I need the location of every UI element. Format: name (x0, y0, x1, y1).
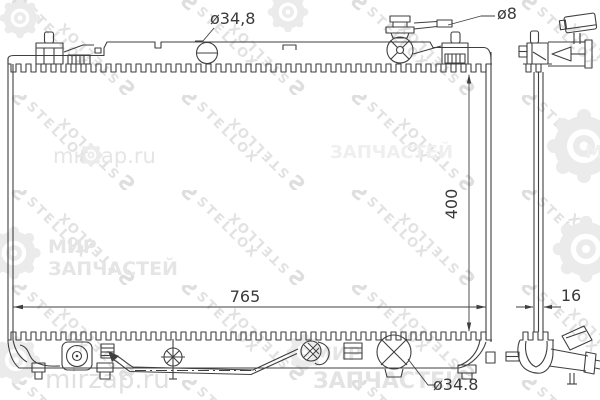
world-watermark-left: МИР (48, 236, 97, 258)
parts-watermark-left: ЗАПЧАСТЕЙ (48, 257, 178, 280)
dim-core-width-label: 765 (230, 287, 261, 306)
dim-core-height-label: 400 (442, 189, 461, 220)
dim-filler-diameter-label: ø34,8 (210, 9, 255, 28)
radiator-technical-drawing: Ƨ STELLOX Ƨ STELLOX mir ap.ru ЗАПЧАСТЕЙ … (0, 0, 600, 400)
world-watermark-edge: МИР (585, 142, 600, 163)
site-watermark-prefix: mir (53, 144, 88, 168)
dim-outlet-diameter-label: ø34.8 (433, 375, 478, 394)
technical-drawing-page: Ƨ STELLOX Ƨ STELLOX mir ap.ru ЗАПЧАСТЕЙ … (0, 0, 600, 400)
parts-watermark-mid: ЗАПЧАСТЕЙ (330, 141, 453, 163)
site-watermark-bottom: mirzap.ru (45, 365, 170, 395)
site-watermark-suffix: ap.ru (101, 144, 156, 168)
dim-core-thickness-label: 16 (561, 286, 581, 305)
dim-hose-diameter-label: ø8 (497, 4, 517, 23)
